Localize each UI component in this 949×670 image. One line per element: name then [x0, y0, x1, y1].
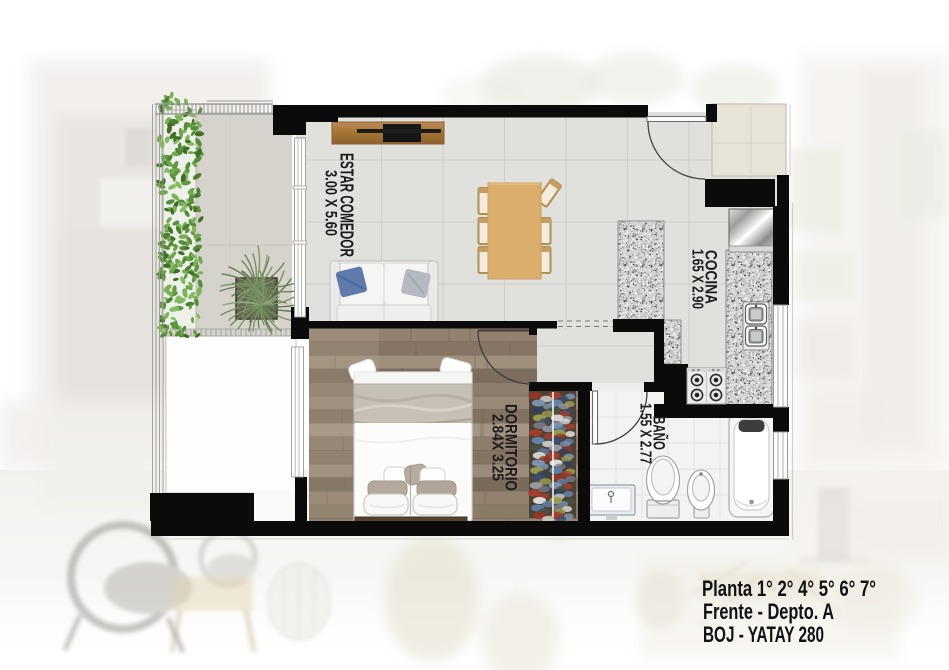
svg-text:1.55 X 2.77: 1.55 X 2.77: [637, 403, 654, 464]
svg-text:1.65 X 2.90: 1.65 X 2.90: [689, 249, 706, 309]
svg-text:Planta 1° 2° 4° 5° 6° 7°: Planta 1° 2° 4° 5° 6° 7°: [702, 576, 876, 601]
svg-text:3.00 X 5.60: 3.00 X 5.60: [322, 170, 341, 236]
svg-text:Frente - Depto. A: Frente - Depto. A: [703, 599, 834, 624]
svg-text:BOJ - YATAY 280: BOJ - YATAY 280: [703, 622, 824, 647]
svg-text:2.84X 3.25: 2.84X 3.25: [489, 414, 506, 481]
